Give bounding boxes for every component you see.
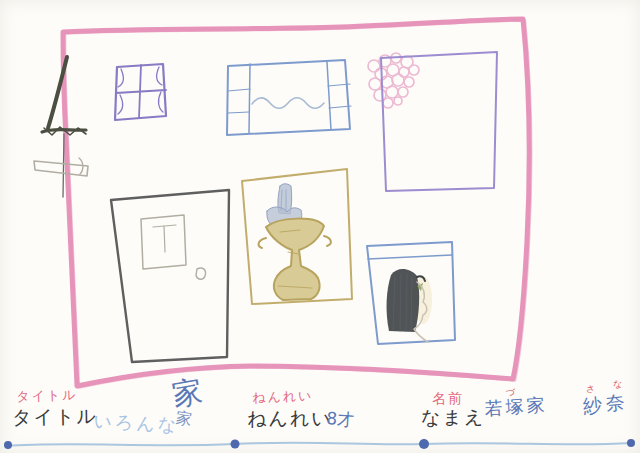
name-field-label: 名前 <box>432 391 464 405</box>
purple-window-with-curtains <box>115 64 166 120</box>
blue-frame-portrait-long-black-hair <box>367 242 455 344</box>
pencil-door-with-window-and-knob <box>111 190 229 362</box>
given-name: 紗奈 <box>582 392 630 416</box>
tan-frame-with-trophy <box>242 169 352 304</box>
age-field-label: ねんれい <box>252 389 314 404</box>
blue-framed-picture-wavy-line <box>227 60 351 135</box>
age-value: 8才 <box>326 410 355 429</box>
title-field-label: タイトル <box>16 388 78 403</box>
given-name-furigana-2: な <box>613 380 624 389</box>
beaded-wavy-underline <box>4 439 635 449</box>
crayon-drawing-canvas <box>0 0 640 453</box>
flag-pencil-box <box>34 158 88 176</box>
pink-house-outline <box>63 19 531 388</box>
scanned-child-drawing: タイトル タイトル いろんな 家 家 ねんれい ねんれい 8才 名前 なまえ 若… <box>0 0 640 453</box>
age-written-label: ねんれい <box>247 409 333 428</box>
family-name: 若塚家 <box>484 396 548 418</box>
name-written-label: なまえ <box>421 408 485 427</box>
title-value: いろんな <box>93 412 180 434</box>
title-kanji-house: 家 <box>170 376 205 411</box>
title-kanji-house-retry: 家 <box>175 410 193 428</box>
family-name-furigana: づ <box>506 388 517 397</box>
title-written-label: タイトル <box>12 407 98 427</box>
pink-flower-cluster <box>368 53 419 108</box>
given-name-furigana-1: さ <box>586 385 597 394</box>
